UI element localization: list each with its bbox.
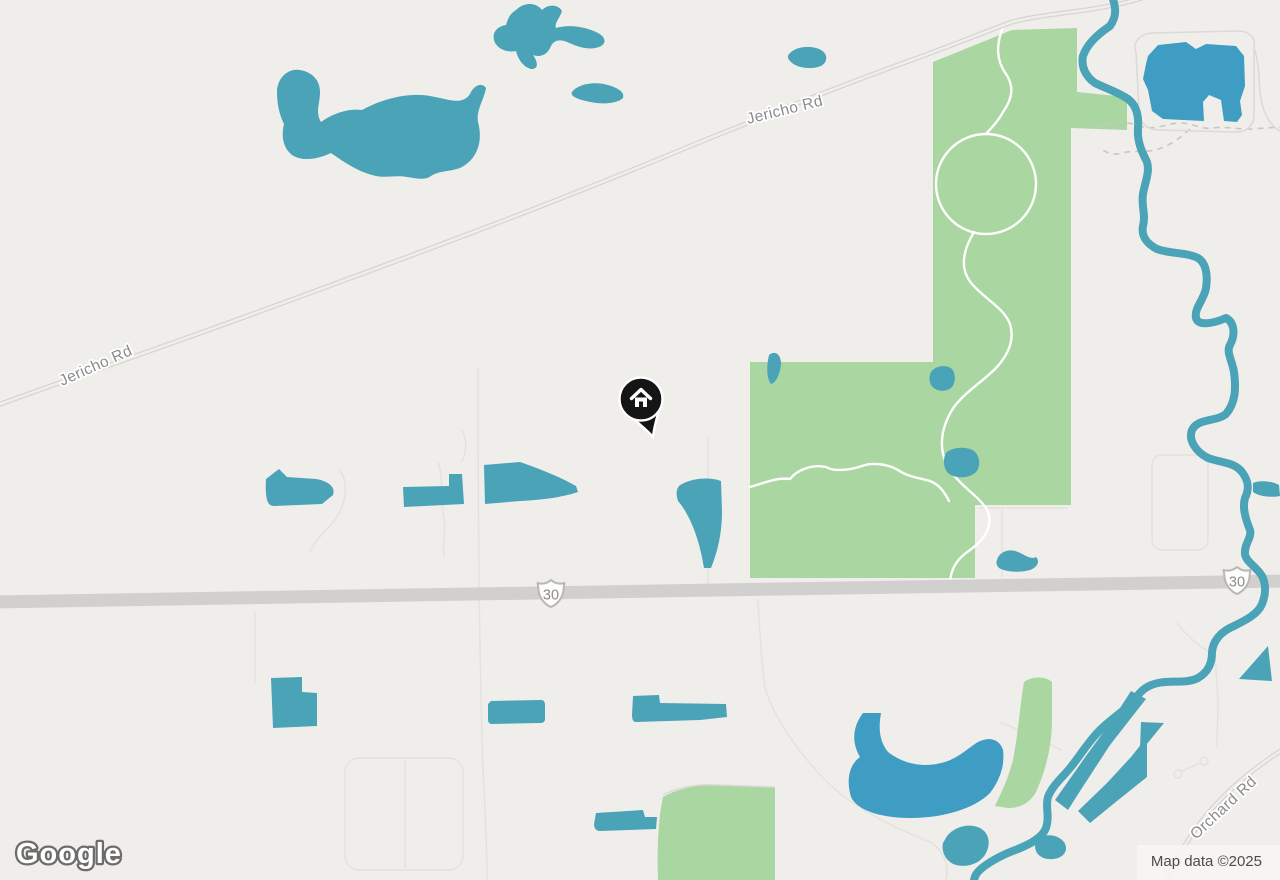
green-strip-southeast [995, 678, 1052, 809]
pond-north-center [494, 4, 605, 69]
route-30-shield-east: 30 [1224, 567, 1251, 594]
us-30-road [0, 581, 1280, 602]
park-areas [658, 28, 1127, 880]
road-labels: Jericho Rd Jericho Rd Orchard Rd [57, 92, 1261, 842]
lake-northeast [1143, 42, 1245, 122]
map-canvas[interactable]: 30 30 Jericho Rd Jericho Rd Orchard Rd G… [0, 0, 1280, 880]
route-number: 30 [543, 588, 559, 604]
road-label-orchard: Orchard Rd [1187, 773, 1260, 843]
google-logo-text: Google [16, 838, 122, 870]
route-number: 30 [1229, 575, 1245, 591]
road-label-jericho-east: Jericho Rd [745, 92, 825, 127]
route-30-shield-west: 30 [538, 580, 565, 607]
lake-northwest [277, 70, 486, 179]
map-svg: 30 30 Jericho Rd Jericho Rd Orchard Rd [0, 0, 1280, 880]
road-label-jericho-west: Jericho Rd [57, 342, 135, 389]
home-marker[interactable] [620, 378, 663, 438]
google-logo[interactable]: Google [12, 834, 142, 874]
green-area-south [658, 785, 775, 880]
map-attribution: Map data ©2025 [1137, 845, 1280, 880]
pond-southeast-large [849, 713, 1004, 818]
